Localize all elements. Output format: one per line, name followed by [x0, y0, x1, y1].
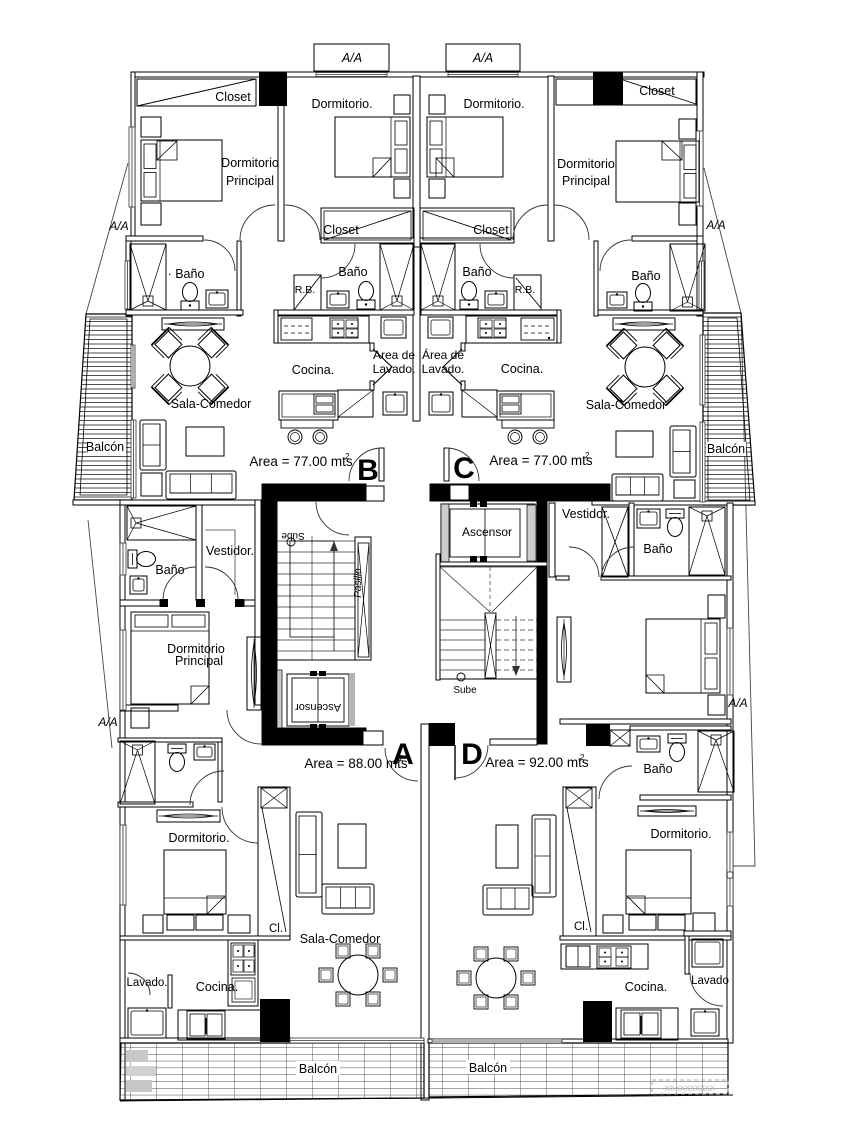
svg-text:Cocina.: Cocina. [292, 363, 334, 377]
svg-text:Cocina.: Cocina. [196, 980, 238, 994]
svg-text:Closet: Closet [215, 90, 251, 104]
svg-text:Sube: Sube [453, 685, 477, 696]
svg-text:Closet: Closet [639, 84, 675, 98]
svg-text:Dormitorio.: Dormitorio. [463, 97, 524, 111]
svg-text:Vestidor.: Vestidor. [206, 544, 254, 558]
svg-text:Balcón: Balcón [299, 1062, 337, 1076]
svg-text:Baño: Baño [338, 265, 367, 279]
svg-text:A/A: A/A [727, 696, 747, 710]
svg-text:Baño: Baño [643, 542, 672, 556]
svg-text:xxxxxxxxxx: xxxxxxxxxx [665, 1083, 715, 1094]
svg-text:· Baño: · Baño [168, 267, 205, 281]
svg-text:2: 2 [399, 754, 404, 763]
svg-text:R.B.: R.B. [515, 284, 535, 296]
svg-text:Baño: Baño [462, 265, 491, 279]
svg-text:Area = 77.00 mts: Area = 77.00 mts [489, 453, 592, 468]
svg-text:Balcón: Balcón [707, 442, 745, 456]
svg-text:A/A: A/A [108, 219, 128, 233]
svg-text:B: B [357, 454, 379, 487]
svg-text:Principal: Principal [562, 174, 610, 188]
svg-text:Ascensor: Ascensor [462, 525, 512, 539]
svg-text:Closet: Closet [473, 223, 509, 237]
svg-text:Principal: Principal [175, 654, 223, 668]
svg-text:A/A: A/A [472, 51, 493, 65]
svg-text:Área de: Área de [422, 347, 464, 362]
svg-text:Area de: Area de [373, 348, 415, 362]
svg-text:Closet: Closet [323, 223, 359, 237]
svg-text:Balcón: Balcón [469, 1061, 507, 1075]
svg-text:Balcón: Balcón [86, 440, 124, 454]
svg-text:Dormitorio: Dormitorio [221, 156, 279, 170]
svg-text:Sala-Comedor: Sala-Comedor [171, 397, 252, 411]
svg-text:2: 2 [585, 451, 590, 460]
svg-text:A/A: A/A [705, 218, 725, 232]
svg-text:Baño: Baño [643, 762, 672, 776]
svg-text:Cl.: Cl. [269, 923, 283, 935]
svg-text:Dormitorio.: Dormitorio. [311, 97, 372, 111]
svg-text:Baño: Baño [155, 563, 184, 577]
svg-text:Dormitorio.: Dormitorio. [168, 831, 229, 845]
svg-text:Sube: Sube [281, 530, 305, 541]
svg-text:C: C [453, 452, 475, 485]
svg-text:Cocina.: Cocina. [501, 362, 543, 376]
svg-text:A/A: A/A [97, 715, 117, 729]
svg-text:Dormitorio: Dormitorio [557, 157, 615, 171]
svg-text:Ascensor: Ascensor [295, 701, 341, 713]
svg-text:2: 2 [345, 452, 350, 461]
svg-text:2: 2 [580, 753, 585, 762]
svg-text:Cl.: Cl. [574, 921, 588, 933]
svg-text:Lavado.: Lavado. [373, 362, 416, 376]
svg-text:Pasillo: Pasillo [353, 568, 364, 598]
svg-text:Area = 88.00 mts: Area = 88.00 mts [304, 756, 407, 771]
svg-text:Principal: Principal [226, 174, 274, 188]
svg-text:Dormitorio.: Dormitorio. [650, 827, 711, 841]
svg-text:Cocina.: Cocina. [625, 980, 667, 994]
svg-text:Baño: Baño [631, 269, 660, 283]
svg-text:R.B.: R.B. [295, 284, 315, 296]
svg-text:Lavado.: Lavado. [422, 362, 465, 376]
svg-text:Area = 77.00 mts: Area = 77.00 mts [249, 454, 352, 469]
svg-text:A/A: A/A [341, 51, 362, 65]
svg-text:Lavado: Lavado [691, 975, 729, 987]
svg-text:D: D [461, 738, 483, 771]
svg-text:Area = 92.00 mts: Area = 92.00 mts [485, 755, 588, 770]
